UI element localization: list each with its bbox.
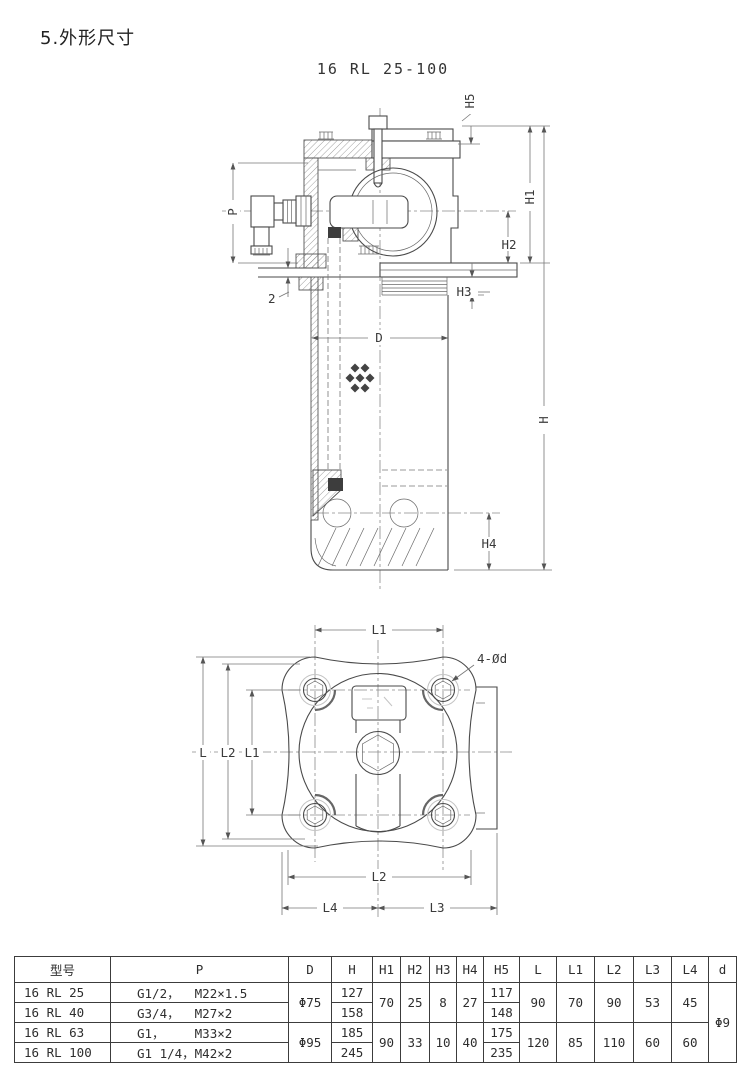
bolt-hole	[300, 675, 336, 711]
cell-l: 120	[520, 1023, 557, 1063]
header-d: D	[289, 957, 332, 983]
dim-label-plate: 2	[268, 291, 276, 306]
dim-label-l1-left: L1	[244, 745, 259, 760]
dim-label-h5: H5	[462, 93, 477, 108]
elbow-fitting	[251, 196, 311, 255]
cell-p: G1， M33×2	[111, 1023, 289, 1043]
dim-h1: H1	[520, 126, 550, 263]
cell-model: 16 RL 63	[15, 1023, 111, 1043]
cap-wedge	[313, 470, 341, 516]
dim-h2: H2	[496, 211, 522, 263]
bottom-view: L1 4-Ød L L2	[192, 622, 512, 920]
cell-h5: 235	[484, 1043, 520, 1063]
table-row: 16 RL 63 G1， M33×2 Φ95 185 90 33 10 40 1…	[15, 1023, 737, 1043]
bolt-callout: 4-Ød	[452, 651, 507, 681]
cell-h1: 90	[373, 1023, 401, 1063]
dim-label-l4: L4	[322, 900, 337, 915]
dim-label-p: P	[225, 208, 240, 216]
bottom-cap	[311, 520, 448, 570]
cover-plate-lower	[372, 141, 460, 158]
filter-media-symbol	[346, 364, 375, 393]
cell-l4: 45	[672, 983, 709, 1023]
bolt-icon	[318, 132, 334, 139]
technical-drawing: P 2 H5 H1	[0, 0, 750, 950]
header-h4: H4	[457, 957, 484, 983]
retainer-icon	[358, 246, 380, 254]
cell-h5: 117	[484, 983, 520, 1003]
cell-l2: 110	[595, 1023, 634, 1063]
bolt-callout-label: 4-Ød	[477, 651, 507, 666]
cell-h: 185	[332, 1023, 373, 1043]
dim-label-h1: H1	[522, 189, 537, 204]
cell-h5: 175	[484, 1023, 520, 1043]
dim-h4: H4	[454, 513, 552, 570]
dim-l3: L3	[378, 833, 497, 915]
name-plate-marks	[362, 697, 392, 708]
dim-label-l2-bottom: L2	[371, 869, 386, 884]
header-model: 型号	[15, 957, 111, 983]
table-header-row: 型号 P D H H1 H2 H3 H4 H5 L L1 L2 L3 L4 d	[15, 957, 737, 983]
dim-h5: H5	[458, 88, 550, 144]
seal-ring	[328, 227, 341, 238]
header-l4: L4	[672, 957, 709, 983]
cell-p: G1/2， M22×1.5	[111, 983, 289, 1003]
cell-h2: 25	[401, 983, 430, 1023]
dim-h: H	[536, 126, 551, 570]
dim-label-l1-top: L1	[371, 622, 386, 637]
cell-h4: 40	[457, 1023, 484, 1063]
header-l2: L2	[595, 957, 634, 983]
side-view: P 2 H5 H1	[222, 88, 552, 592]
drawing-page: 5.外形尺寸 16 RL 25-100	[0, 0, 750, 1081]
cell-d-hole: Φ9	[709, 983, 737, 1063]
cover-bolt-head	[369, 116, 387, 129]
dim-label-h2: H2	[501, 237, 516, 252]
cell-d: Φ95	[289, 1023, 332, 1063]
dim-label-d: D	[375, 330, 383, 345]
header-h5: H5	[484, 957, 520, 983]
dim-label-h4: H4	[481, 536, 496, 551]
header-d-hole: d	[709, 957, 737, 983]
cell-l2: 90	[595, 983, 634, 1023]
cell-l3: 53	[634, 983, 672, 1023]
dim-l2-bottom: L2	[288, 850, 471, 885]
dim-d: D	[312, 330, 448, 345]
element-end-cap	[330, 196, 408, 228]
name-plate	[352, 686, 406, 720]
cell-h3: 8	[430, 983, 457, 1023]
dimension-table: 型号 P D H H1 H2 H3 H4 H5 L L1 L2 L3 L4 d …	[14, 956, 737, 1063]
cover-bolt-tip	[374, 183, 382, 187]
bolt-hole	[300, 795, 336, 831]
cell-l3: 60	[634, 1023, 672, 1063]
cell-p: G3/4， M27×2	[111, 1003, 289, 1023]
side-port-tab	[476, 687, 497, 829]
cell-model: 16 RL 25	[15, 983, 111, 1003]
header-h1: H1	[373, 957, 401, 983]
cell-h4: 27	[457, 983, 484, 1023]
cell-p: G1 1/4，M42×2	[111, 1043, 289, 1063]
head-right-profile	[451, 158, 458, 263]
table-row: 16 RL 25 G1/2， M22×1.5 Φ75 127 70 25 8 2…	[15, 983, 737, 1003]
cell-model: 16 RL 100	[15, 1043, 111, 1063]
cell-h: 127	[332, 983, 373, 1003]
cell-h3: 10	[430, 1023, 457, 1063]
header-l3: L3	[634, 957, 672, 983]
dim-label-h3: H3	[456, 284, 471, 299]
cell-l1: 70	[557, 983, 595, 1023]
header-l1: L1	[557, 957, 595, 983]
cell-h: 245	[332, 1043, 373, 1063]
cell-l4: 60	[672, 1023, 709, 1063]
header-l: L	[520, 957, 557, 983]
cell-l: 90	[520, 983, 557, 1023]
dim-label-l3: L3	[429, 900, 444, 915]
cap-seal	[328, 478, 343, 491]
dim-l4: L4	[282, 852, 378, 915]
dim-label-l2-left: L2	[220, 745, 235, 760]
cell-d: Φ75	[289, 983, 332, 1023]
dim-label-h: H	[536, 416, 551, 424]
cell-model: 16 RL 40	[15, 1003, 111, 1023]
dim-l1-left: L1	[242, 690, 300, 815]
spring-seat	[343, 228, 358, 241]
cell-l1: 85	[557, 1023, 595, 1063]
header-h3: H3	[430, 957, 457, 983]
cell-h2: 33	[401, 1023, 430, 1063]
dim-label-l: L	[199, 745, 207, 760]
header-p: P	[111, 957, 289, 983]
header-h: H	[332, 957, 373, 983]
spring	[315, 528, 434, 566]
thread-section	[382, 277, 447, 295]
cell-h5: 148	[484, 1003, 520, 1023]
flange-left-block	[296, 254, 326, 268]
dim-l1-top: L1	[315, 622, 443, 637]
cell-h: 158	[332, 1003, 373, 1023]
header-h2: H2	[401, 957, 430, 983]
cell-h1: 70	[373, 983, 401, 1023]
head-block	[304, 140, 377, 158]
